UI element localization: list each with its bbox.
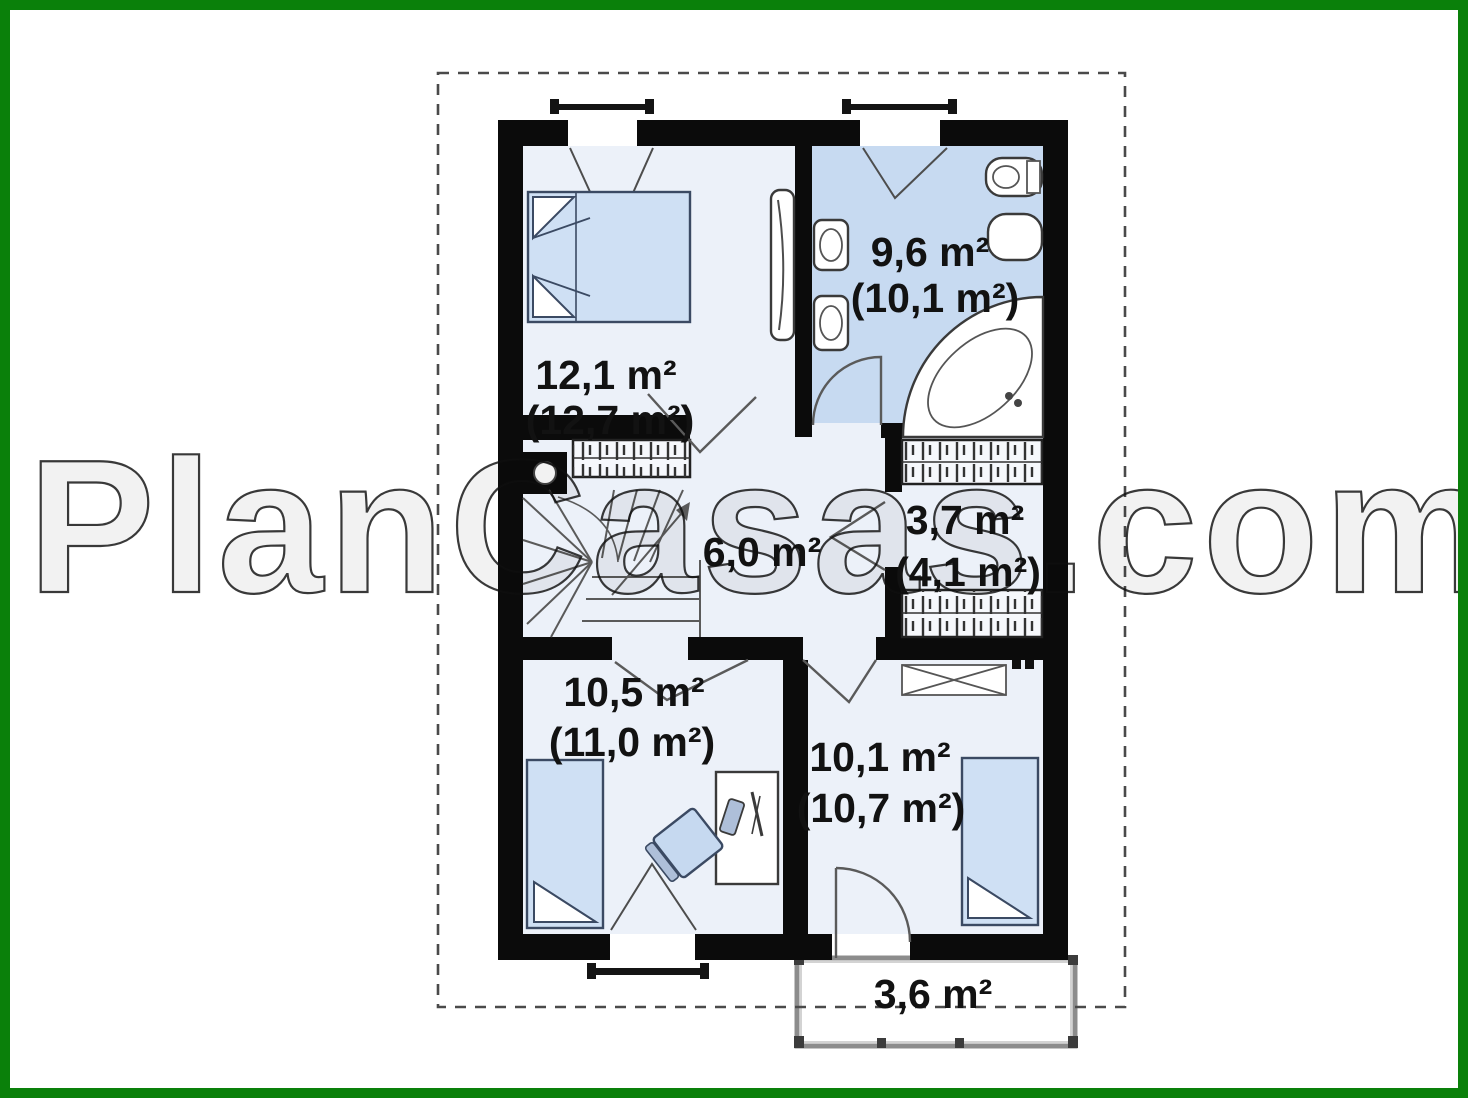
bidet-icon	[988, 214, 1042, 260]
boiler-symbol	[534, 462, 556, 484]
shelf-unit	[573, 440, 690, 477]
wall-bottom-a	[498, 934, 610, 960]
wall-bottom-c	[910, 934, 1068, 960]
room-label-bathroom-gross: (10,1 m²)	[851, 275, 1020, 321]
room-label-bedroom-bottom-left: 10,5 m²	[563, 669, 704, 715]
wall-bottom-b	[695, 934, 832, 960]
room-label-bedroom-bottom-right: 10,1 m²	[809, 734, 950, 780]
bed-double	[528, 192, 690, 322]
wall-top-b	[637, 120, 860, 146]
room-label-hall: 6,0 m²	[703, 529, 822, 575]
room-label-wardrobe-gross: (4,1 m²)	[895, 549, 1041, 595]
wall-left	[498, 146, 523, 934]
wall-hall-bottom-b	[688, 637, 803, 660]
room-label-bedroom-top-left: 12,1 m²	[535, 352, 676, 398]
desk-icon	[716, 772, 778, 884]
wall-hall-bottom-c	[876, 637, 1043, 660]
wall-wardrobe-left-upper	[885, 438, 902, 492]
wall-hall-bottom-a	[498, 637, 612, 660]
window-top-bathroom	[842, 99, 957, 114]
room-label-wardrobe: 3,7 m²	[906, 497, 1025, 543]
floor-plan-drawing: 12,1 m² (12,7 m²) 9,6 m² (10,1 m²) 3,7 m…	[0, 0, 1468, 1098]
radiator-icon	[771, 190, 794, 340]
sink-icon	[814, 296, 848, 350]
room-label-bedroom-bottom-left-gross: (11,0 m²)	[549, 719, 715, 765]
sink-icon	[814, 220, 848, 270]
toilet-icon	[986, 158, 1042, 196]
wall-top-c	[940, 120, 1068, 146]
window-top-left	[550, 99, 654, 114]
shelf-unit	[902, 590, 1042, 637]
bed-single-right	[962, 758, 1038, 925]
room-label-balcony: 3,6 m²	[874, 971, 993, 1017]
shelf-unit	[902, 440, 1042, 484]
wall-bedroom-bathroom	[795, 146, 812, 437]
room-label-bedroom-top-left-gross: (12,7 m²)	[526, 397, 695, 443]
window-bottom-left	[587, 963, 709, 979]
bed-single-left	[527, 760, 603, 928]
floor-plan-page: { "watermark": "PlanCasas.com", "colors"…	[0, 0, 1468, 1098]
wall-top-a	[498, 120, 568, 146]
wall-right	[1043, 146, 1068, 934]
room-label-bedroom-bottom-right-gross: (10,7 m²)	[797, 785, 966, 831]
room-label-bathroom: 9,6 m²	[871, 229, 990, 275]
